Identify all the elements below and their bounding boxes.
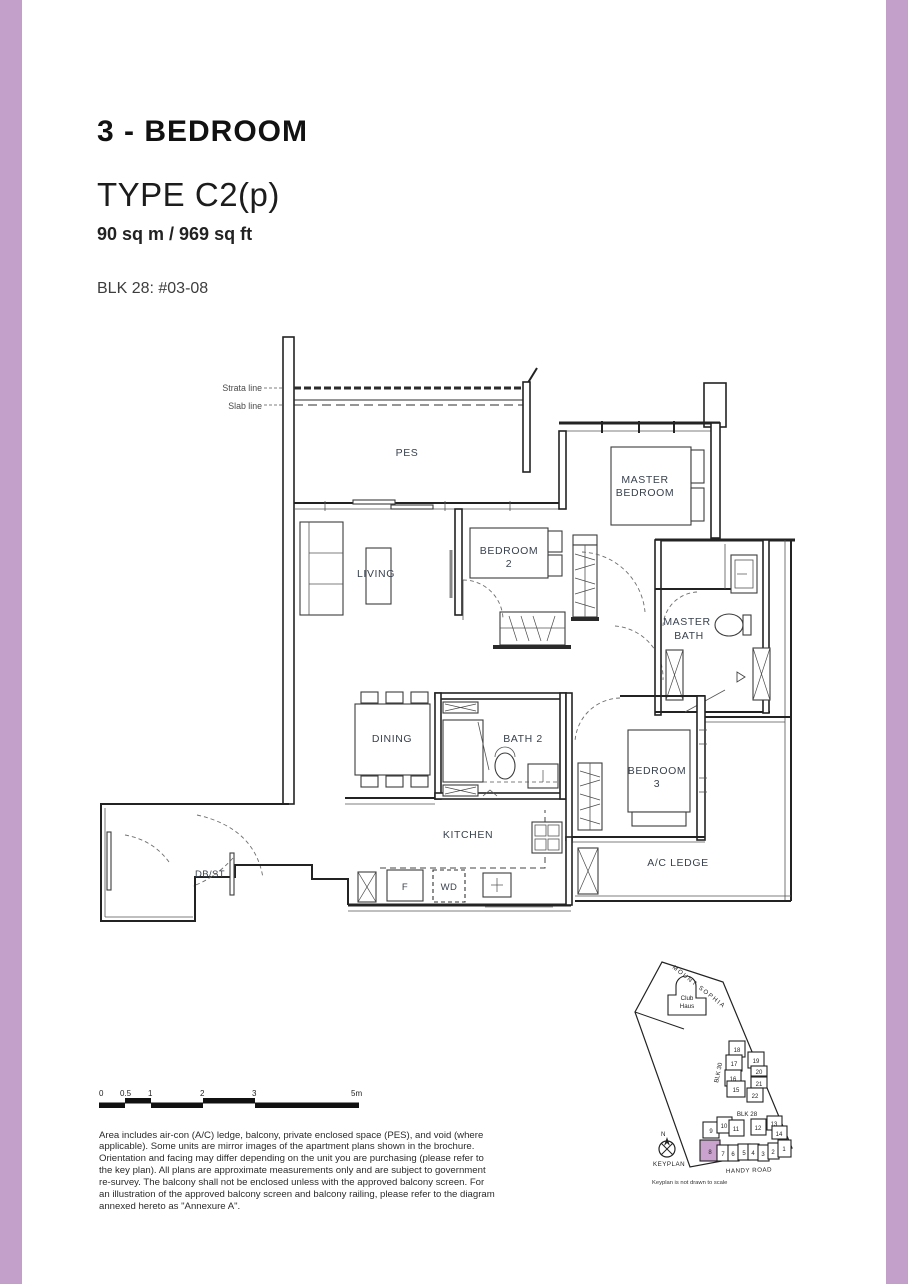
room-label-bath2: BATH 2 xyxy=(503,733,543,745)
scale-3: 3 xyxy=(252,1090,257,1098)
room-label-dining: DINING xyxy=(372,733,412,745)
ac-shaft-left xyxy=(666,650,683,700)
master-bath-shower xyxy=(685,672,745,712)
keyplan-label: KEYPLAN xyxy=(653,1161,685,1168)
wall-living-bedroom2 xyxy=(455,509,462,615)
ac-ledge-shaft xyxy=(578,848,598,894)
room-label-master-bath-1: MASTER xyxy=(663,616,710,628)
compass-icon xyxy=(659,1137,675,1157)
room-label-dbst: DB/ST xyxy=(195,869,225,880)
scale-2: 2 xyxy=(200,1090,205,1098)
scale-1: 1 xyxy=(148,1090,153,1098)
hall-wardrobe xyxy=(571,535,599,621)
unit-type: TYPE C2(p) xyxy=(97,176,280,214)
club-haus-label-2: Haus xyxy=(680,1003,694,1010)
kitchen-sink xyxy=(483,873,511,897)
wall-kitchen xyxy=(345,798,571,911)
wall-right-outer xyxy=(700,540,791,901)
brochure-page: 3 - BEDROOM TYPE C2(p) 90 sq m / 969 sq … xyxy=(0,0,908,1284)
unit-22: 22 xyxy=(752,1094,759,1100)
unit-10: 10 xyxy=(721,1124,728,1130)
bedroom2-door-arc xyxy=(463,580,503,620)
wall-left-tall xyxy=(283,337,294,804)
disclaimer-text: Area includes air-con (A/C) ledge, balco… xyxy=(99,1130,495,1213)
strata-line-label: Strata line xyxy=(222,383,262,393)
unit-block-number: BLK 28: #03-08 xyxy=(97,280,208,298)
room-label-master-bedroom-1: MASTER xyxy=(621,474,668,486)
slab-line-label: Slab line xyxy=(228,401,262,411)
master-bath-vanity xyxy=(731,555,757,593)
room-label-bedroom2-2: 2 xyxy=(506,558,512,570)
wall-pes-bottom xyxy=(294,500,565,511)
unit-area: 90 sq m / 969 sq ft xyxy=(97,224,252,245)
blk30-units: 18 17 19 16 20 21 15 22 xyxy=(725,1041,767,1102)
room-label-master-bath-2: BATH xyxy=(674,630,704,642)
left-purple-border xyxy=(0,0,22,1284)
room-label-ac-ledge: A/C LEDGE xyxy=(647,857,708,869)
room-label-living: LIVING xyxy=(357,568,395,580)
unit-12: 12 xyxy=(755,1126,762,1132)
room-label-bedroom2-1: BEDROOM xyxy=(480,545,538,557)
bath2-fixtures xyxy=(443,702,560,796)
unit-19: 19 xyxy=(753,1059,760,1065)
scale-5m: 5m xyxy=(351,1090,362,1098)
room-label-bedroom3-1: BEDROOM xyxy=(628,765,686,777)
room-label-pes: PES xyxy=(396,447,419,459)
wall-ac-ledge xyxy=(566,837,791,905)
master-bath-toilet xyxy=(715,614,751,636)
keyplan: Club Haus MOUNT SOPHIA BLK 30 BLK 28 18 … xyxy=(620,950,890,1195)
scale-0: 0 xyxy=(99,1090,104,1098)
unit-17: 17 xyxy=(731,1062,738,1068)
club-haus-label-1: Club xyxy=(681,995,694,1002)
washer-dryer-label: WD xyxy=(441,882,458,893)
scale-05: 0.5 xyxy=(120,1090,132,1098)
blk30-label: BLK 30 xyxy=(713,1062,724,1084)
unit-20: 20 xyxy=(756,1070,763,1076)
wall-corridor xyxy=(566,693,572,840)
wall-foyer xyxy=(101,804,348,921)
unit-14: 14 xyxy=(776,1132,783,1138)
unit-11: 11 xyxy=(733,1127,740,1133)
bedroom3-wardrobe xyxy=(578,763,602,830)
compass-north-label: N xyxy=(661,1131,665,1138)
unit-18: 18 xyxy=(734,1048,741,1054)
master-bed xyxy=(611,447,704,525)
wall-pes-right xyxy=(523,382,530,472)
blk28-units-row1: 9 10 11 12 13 14 xyxy=(703,1116,787,1139)
kitchen-cooktop xyxy=(532,822,562,853)
fridge-label: F xyxy=(402,882,408,893)
keyplan-note: Keyplan is not drawn to scale xyxy=(652,1180,727,1186)
bedroom3-door-arc xyxy=(575,698,620,742)
living-sofa xyxy=(300,522,343,615)
floor-plan: Strata line Slab line PES xyxy=(85,330,815,940)
room-label-kitchen: KITCHEN xyxy=(443,829,493,841)
blk28-units-row2: 8 7 6 5 4 3 2 1 xyxy=(700,1140,791,1161)
blk28-label: BLK 28 xyxy=(737,1111,758,1118)
kitchen-shaft xyxy=(358,872,376,902)
page-title: 3 - BEDROOM xyxy=(97,115,308,149)
road-label-handy-road: HANDY ROAD xyxy=(726,1166,772,1175)
unit-15: 15 xyxy=(733,1088,740,1094)
unit-21: 21 xyxy=(756,1082,763,1088)
bedroom2-wardrobe xyxy=(493,612,571,649)
room-label-master-bedroom-2: BEDROOM xyxy=(616,487,674,499)
ac-shaft-right xyxy=(753,648,770,700)
scale-bar: 0 0.5 1 2 3 5m xyxy=(95,1090,375,1116)
room-label-bedroom3-2: 3 xyxy=(654,778,660,790)
entry-door-arc1 xyxy=(125,835,169,862)
